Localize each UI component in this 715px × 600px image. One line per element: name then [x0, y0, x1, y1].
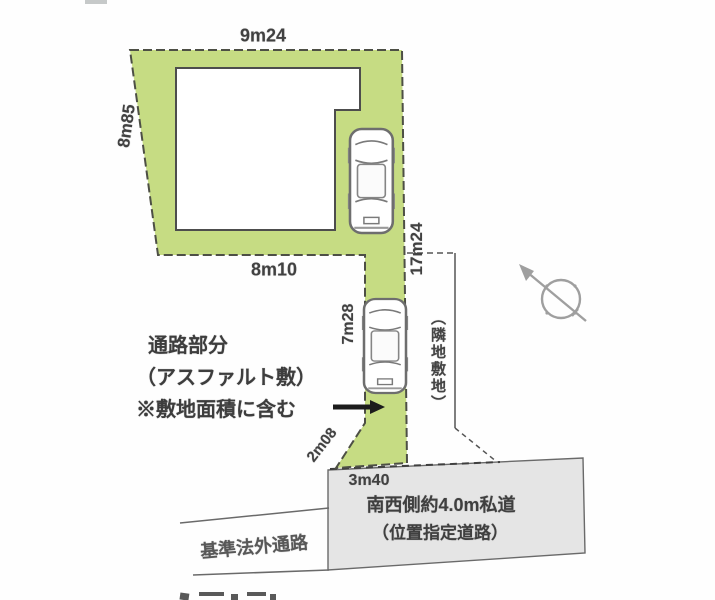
passage-note: 通路部分 （アスファルト敷） ※敷地面積に含む [136, 330, 316, 426]
car-top-view-icon-passage [362, 299, 408, 393]
building-footprint [176, 68, 360, 230]
nonstandard-passage-lower-line [193, 570, 329, 575]
dim-label-right: 17m24 [407, 223, 427, 276]
dim-label-top: 9m24 [240, 26, 286, 47]
dim-label-passage: 7m28 [340, 304, 358, 345]
adjacent-lot-label: （隣地敷地） [427, 310, 448, 412]
dim-label-bottom: 8m10 [251, 260, 297, 281]
passage-note-line3: ※敷地面積に含む [136, 394, 316, 426]
car-top-view-icon-lot [348, 129, 395, 233]
cropped-text-fragment [179, 592, 276, 600]
nonstandard-passage-upper-line [180, 508, 329, 523]
north-arrow-compass-icon [519, 264, 586, 321]
scan-artifact [85, 0, 107, 4]
dim-label-road-frontage: 3m40 [349, 472, 390, 490]
road-label-line1: 南西側約4.0m私道 [366, 491, 515, 517]
lot-diagram-shapes [0, 0, 715, 600]
adjacent-boundary-diagonal [455, 428, 497, 462]
passage-note-line2: （アスファルト敷） [136, 362, 316, 394]
passage-note-line1: 通路部分 [148, 330, 316, 362]
road-label-line2: （位置指定道路） [372, 519, 508, 544]
lot-diagram: 9m24 8m85 8m10 17m24 7m28 2m08 3m40 通路部分… [0, 0, 715, 600]
